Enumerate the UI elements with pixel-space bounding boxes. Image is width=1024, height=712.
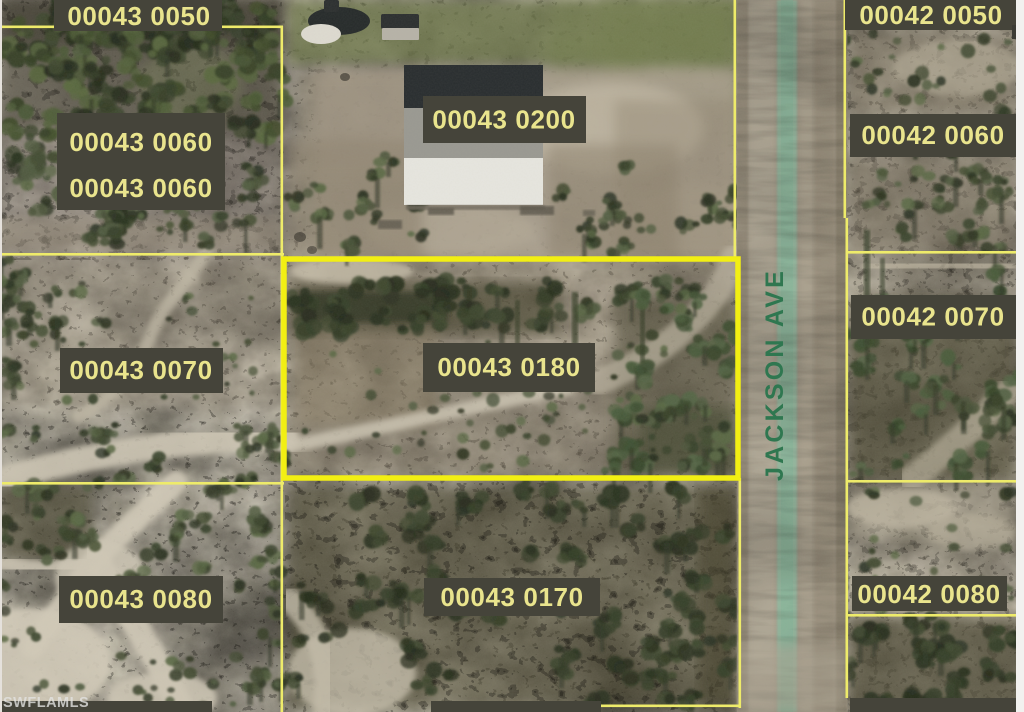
svg-text:SWFLAMLS: SWFLAMLS	[3, 695, 89, 711]
svg-text:00043 0170: 00043 0170	[440, 582, 583, 612]
svg-text:00043 0060: 00043 0060	[69, 127, 212, 157]
svg-text:00042 0050: 00042 0050	[859, 0, 1002, 30]
svg-text:00043 0180: 00043 0180	[437, 352, 580, 382]
svg-text:00042 0070: 00042 0070	[861, 302, 1004, 332]
svg-text:00043 0080: 00043 0080	[69, 584, 212, 614]
svg-text:00043 0070: 00043 0070	[69, 355, 212, 385]
svg-text:00042 0080: 00042 0080	[857, 579, 1000, 609]
svg-text:00042 0060: 00042 0060	[861, 120, 1004, 150]
svg-text:00043 0200: 00043 0200	[432, 105, 575, 135]
svg-text:00043 0050: 00043 0050	[67, 1, 210, 31]
svg-text:00043 0060: 00043 0060	[69, 173, 212, 203]
svg-text:JACKSON AVE: JACKSON AVE	[761, 268, 789, 481]
